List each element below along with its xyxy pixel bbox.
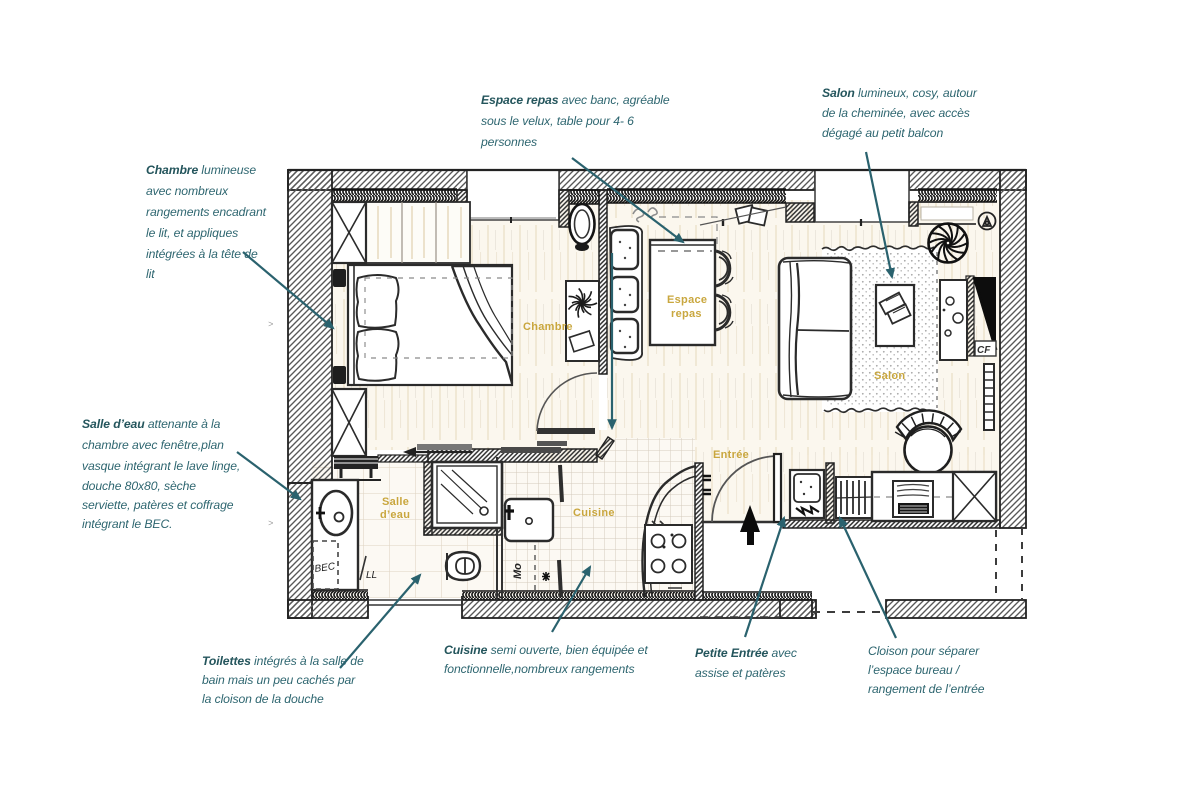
svg-text:rangements encadrant: rangements encadrant — [146, 205, 267, 219]
svg-text:Petite Entrée avec: Petite Entrée avec — [695, 646, 797, 660]
svg-text:LL: LL — [366, 570, 377, 581]
svg-text:Salon lumineux, cosy, autour: Salon lumineux, cosy, autour — [822, 86, 978, 100]
svg-text:serviette, patères et coffrag: serviette, patères et coffrage — [82, 498, 234, 512]
svg-text:Chambre lumineuse: Chambre lumineuse — [146, 163, 256, 177]
svg-text:dégagé au petit balcon: dégagé au petit balcon — [822, 126, 943, 140]
svg-text:sous le velux, table pour 4- 6: sous le velux, table pour 4- 6 — [481, 114, 634, 128]
svg-text:Mo: Mo — [512, 563, 524, 579]
svg-text:rangement de l’entrée: rangement de l’entrée — [868, 682, 985, 696]
svg-text:douche 80x80, sèche: douche 80x80, sèche — [82, 479, 196, 493]
svg-text:>: > — [268, 518, 273, 528]
svg-text:CF: CF — [977, 345, 991, 356]
svg-text:chambre avec fenêtre,plan: chambre avec fenêtre,plan — [82, 438, 224, 452]
svg-text:Toilettes intégrés à la salle: Toilettes intégrés à la salle de — [202, 654, 364, 668]
svg-text:personnes: personnes — [480, 135, 537, 149]
svg-text:le lit, et appliques: le lit, et appliques — [146, 226, 238, 240]
svg-text:Salle: Salle — [382, 496, 409, 508]
svg-text:avec nombreux: avec nombreux — [146, 184, 229, 198]
svg-text:lit: lit — [146, 267, 155, 281]
svg-text:repas: repas — [671, 308, 702, 320]
svg-text:Cuisine: Cuisine — [573, 507, 615, 519]
svg-text:bain mais un peu cachés par: bain mais un peu cachés par — [202, 673, 356, 687]
svg-text:Espace repas avec banc, agréab: Espace repas avec banc, agréable — [481, 93, 670, 107]
svg-text:l’espace bureau /: l’espace bureau / — [868, 663, 961, 677]
svg-text:Entrée: Entrée — [713, 449, 749, 461]
svg-text:intégrées à la tête de: intégrées à la tête de — [146, 247, 258, 261]
svg-text:Salon: Salon — [874, 370, 905, 382]
svg-text:Salle d’eau attenante à la: Salle d’eau attenante à la — [82, 417, 221, 431]
svg-text:intégrant le BEC.: intégrant le BEC. — [82, 517, 172, 531]
svg-text:assise et patères: assise et patères — [695, 666, 785, 680]
svg-text:Cloison pour séparer: Cloison pour séparer — [868, 644, 980, 658]
svg-text:vasque intégrant le lave linge: vasque intégrant le lave linge, — [82, 459, 240, 473]
svg-text:d’eau: d’eau — [380, 509, 410, 521]
svg-text:de la cheminée, avec accès: de la cheminée, avec accès — [822, 106, 970, 120]
svg-text:Espace: Espace — [667, 294, 707, 306]
svg-text:Cuisine semi ouverte, bien équ: Cuisine semi ouverte, bien équipée et — [444, 643, 648, 657]
svg-text:Chambre: Chambre — [523, 321, 573, 333]
svg-text:fonctionnelle,nombreux rangeme: fonctionnelle,nombreux rangements — [444, 662, 634, 676]
svg-text:la cloison de la douche: la cloison de la douche — [202, 692, 324, 706]
svg-text:>: > — [268, 319, 273, 329]
